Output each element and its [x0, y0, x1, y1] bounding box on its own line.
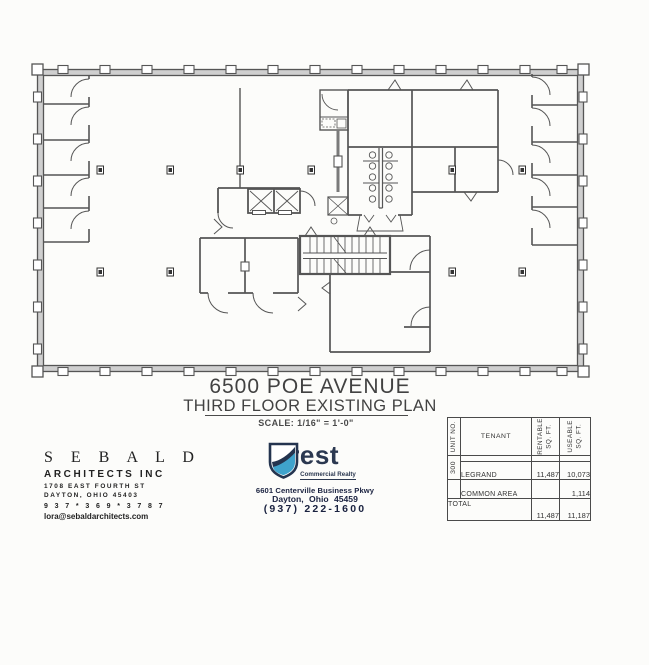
architect-block: S E B A L D ARCHITECTS INC 1708 EAST FOU…	[44, 450, 204, 521]
building-perimeter-wall	[32, 64, 589, 377]
realtor-tagline: Commercial Realty	[300, 471, 356, 480]
rentable-value	[532, 479, 560, 498]
header-rentable: RENTABLE SQ. FT.	[537, 418, 554, 455]
scanned-floor-plan-page: 6500 POE AVENUE THIRD FLOOR EXISTING PLA…	[0, 0, 649, 665]
realtor-phone: (937) 222-1600	[255, 503, 375, 515]
restrooms	[348, 147, 412, 231]
architect-city: DAYTON, OHIO 45403	[44, 493, 204, 499]
stairwell	[300, 227, 390, 274]
window-mullion-ticks	[34, 66, 588, 376]
building-core	[214, 80, 513, 234]
architect-name: S E B A L D	[44, 450, 204, 466]
right-offices	[532, 74, 577, 245]
table-header-row: UNIT NO. TENANT RENTABLE SQ. FT. USEABLE…	[448, 418, 591, 456]
header-unit-no: UNIT NO.	[450, 421, 459, 453]
service-closet	[320, 90, 348, 130]
left-offices	[44, 76, 89, 242]
table-total-row: TOTAL 11,487 11,187	[448, 498, 591, 520]
rooms-left-of-stair	[200, 238, 298, 313]
useable-value: 10,073	[560, 461, 591, 479]
unit-number-empty	[448, 479, 461, 498]
unit-number: 300	[449, 461, 458, 474]
table-row: COMMON AREA 1,114	[448, 479, 591, 498]
janitor-closet	[328, 197, 348, 224]
rentable-value: 11,487	[532, 461, 560, 479]
tenant-schedule-table: UNIT NO. TENANT RENTABLE SQ. FT. USEABLE…	[447, 417, 591, 521]
architect-street: 1708 EAST FOURTH ST	[44, 484, 204, 490]
elevator-bank	[214, 188, 315, 234]
tenant-name: COMMON AREA	[461, 479, 532, 498]
useable-value: 1,114	[560, 479, 591, 498]
plan-subtitle: THIRD FLOOR EXISTING PLAN	[0, 397, 620, 416]
total-useable: 11,187	[560, 498, 591, 520]
total-rentable: 11,487	[532, 498, 560, 520]
header-tenant: TENANT	[461, 418, 532, 456]
realtor-logo: Crest	[268, 442, 339, 469]
total-label: TOTAL	[448, 498, 532, 520]
plan-title: 6500 POE AVENUE	[0, 375, 620, 399]
tenant-name: LEGRAND	[461, 461, 532, 479]
architect-firm: ARCHITECTS INC	[44, 470, 204, 480]
floor-plan-drawing	[0, 0, 649, 440]
architect-phone: 9 3 7 * 3 6 9 * 3 7 8 7	[44, 503, 204, 510]
column-markers	[97, 166, 526, 276]
header-useable: USEABLE SQ. FT.	[567, 420, 584, 453]
architect-email: lora@sebaldarchitects.com	[44, 513, 204, 521]
table-row: LEGRAND 11,487 10,073	[448, 461, 591, 479]
crest-shield-icon	[268, 442, 299, 479]
title-underline	[205, 415, 408, 416]
